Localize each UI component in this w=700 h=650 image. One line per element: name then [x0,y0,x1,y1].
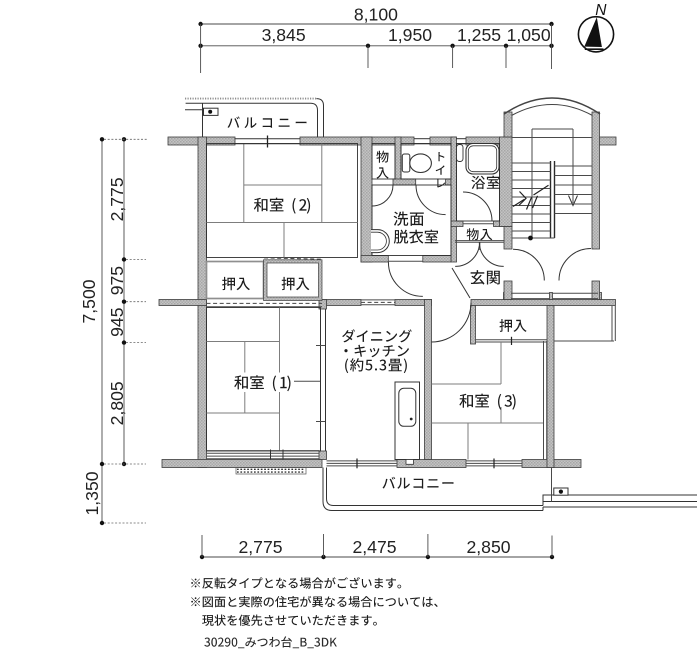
svg-text:2,775: 2,775 [107,177,127,221]
svg-text:7,500: 7,500 [79,279,99,323]
svg-text:1,255: 1,255 [457,25,501,45]
svg-text:2,850: 2,850 [466,537,510,557]
svg-text:975: 975 [107,266,127,296]
svg-text:945: 945 [107,307,127,337]
svg-text:1,050: 1,050 [507,25,551,45]
svg-text:1,350: 1,350 [82,471,102,515]
svg-text:2,805: 2,805 [107,381,127,425]
svg-text:3,845: 3,845 [262,25,306,45]
svg-text:1,950: 1,950 [388,25,432,45]
svg-text:2,475: 2,475 [352,537,396,557]
svg-text:8,100: 8,100 [354,4,398,24]
svg-text:N: N [595,2,607,19]
svg-text:2,775: 2,775 [238,537,282,557]
